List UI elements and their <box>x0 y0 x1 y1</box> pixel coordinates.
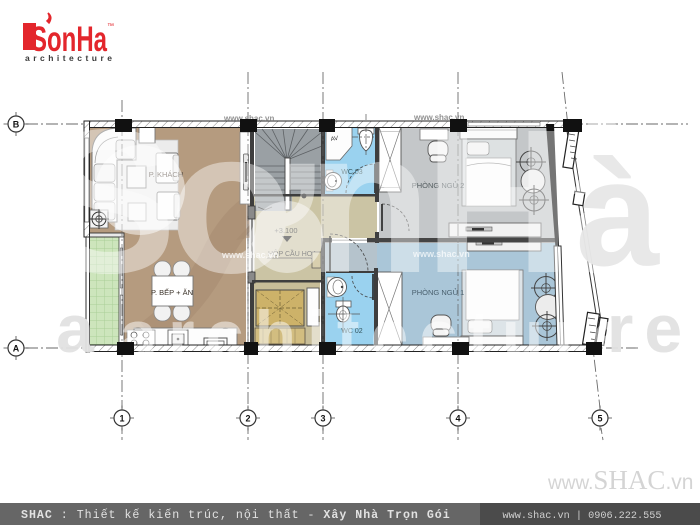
svg-text:www.shac.vn | 0906.222.555: www.shac.vn | 0906.222.555 <box>503 510 662 522</box>
svg-text:A: A <box>13 344 20 354</box>
svg-text:™: ™ <box>107 23 114 30</box>
svg-text:2: 2 <box>245 414 250 424</box>
svg-text:4: 4 <box>455 414 460 424</box>
svg-text:B: B <box>13 120 20 130</box>
svg-text:3: 3 <box>320 414 325 424</box>
svg-text:5: 5 <box>597 414 602 424</box>
svg-text:a: a <box>56 291 95 367</box>
svg-text:www.shac.vn: www.shac.vn <box>412 249 470 259</box>
svg-text:architecture: architecture <box>119 297 640 373</box>
svg-text:1: 1 <box>119 414 124 424</box>
svg-text:re: re <box>607 291 693 367</box>
svg-text:www.shac.vn: www.shac.vn <box>221 250 279 260</box>
svg-text:à: à <box>576 129 660 297</box>
svg-text:SHAC : Thiết kế kiến trúc, nội: SHAC : Thiết kế kiến trúc, nội thất - Xâ… <box>21 509 451 522</box>
